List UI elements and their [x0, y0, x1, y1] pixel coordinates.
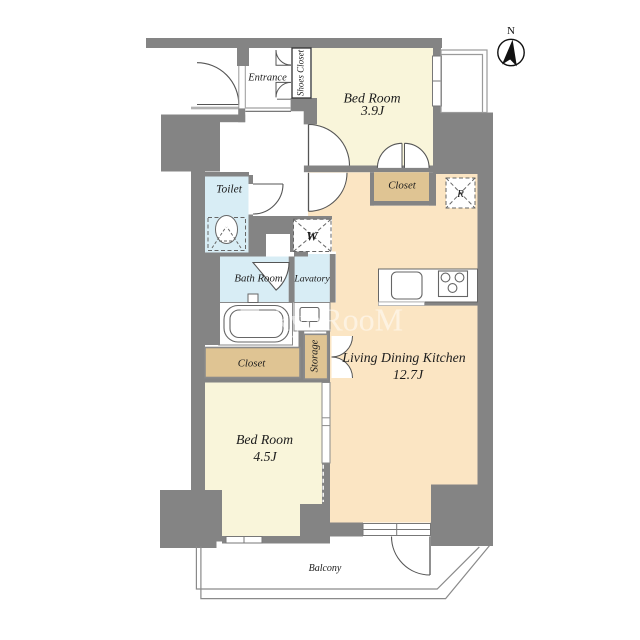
svg-text:Closet: Closet: [388, 180, 417, 192]
svg-text:N: N: [507, 25, 515, 37]
svg-text:R: R: [456, 188, 464, 200]
svg-text:Bath Room: Bath Room: [234, 273, 282, 285]
svg-text:Bed Room: Bed Room: [236, 432, 293, 447]
svg-text:Lavatory: Lavatory: [293, 274, 330, 285]
svg-text:Storage: Storage: [310, 339, 321, 372]
svg-text:Living Dining Kitchen: Living Dining Kitchen: [341, 350, 465, 365]
svg-text:TokyoRooM: TokyoRooM: [240, 302, 403, 338]
svg-text:W: W: [306, 229, 319, 244]
svg-text:Balcony: Balcony: [309, 563, 342, 574]
svg-text:12.7J: 12.7J: [393, 367, 424, 382]
svg-text:3.9J: 3.9J: [360, 103, 385, 118]
svg-text:Toilet: Toilet: [216, 184, 243, 196]
svg-text:Entrance: Entrance: [247, 73, 287, 84]
svg-text:Shoes Closet: Shoes Closet: [296, 49, 306, 96]
svg-text:4.5J: 4.5J: [253, 449, 277, 464]
svg-text:Closet: Closet: [238, 358, 267, 370]
